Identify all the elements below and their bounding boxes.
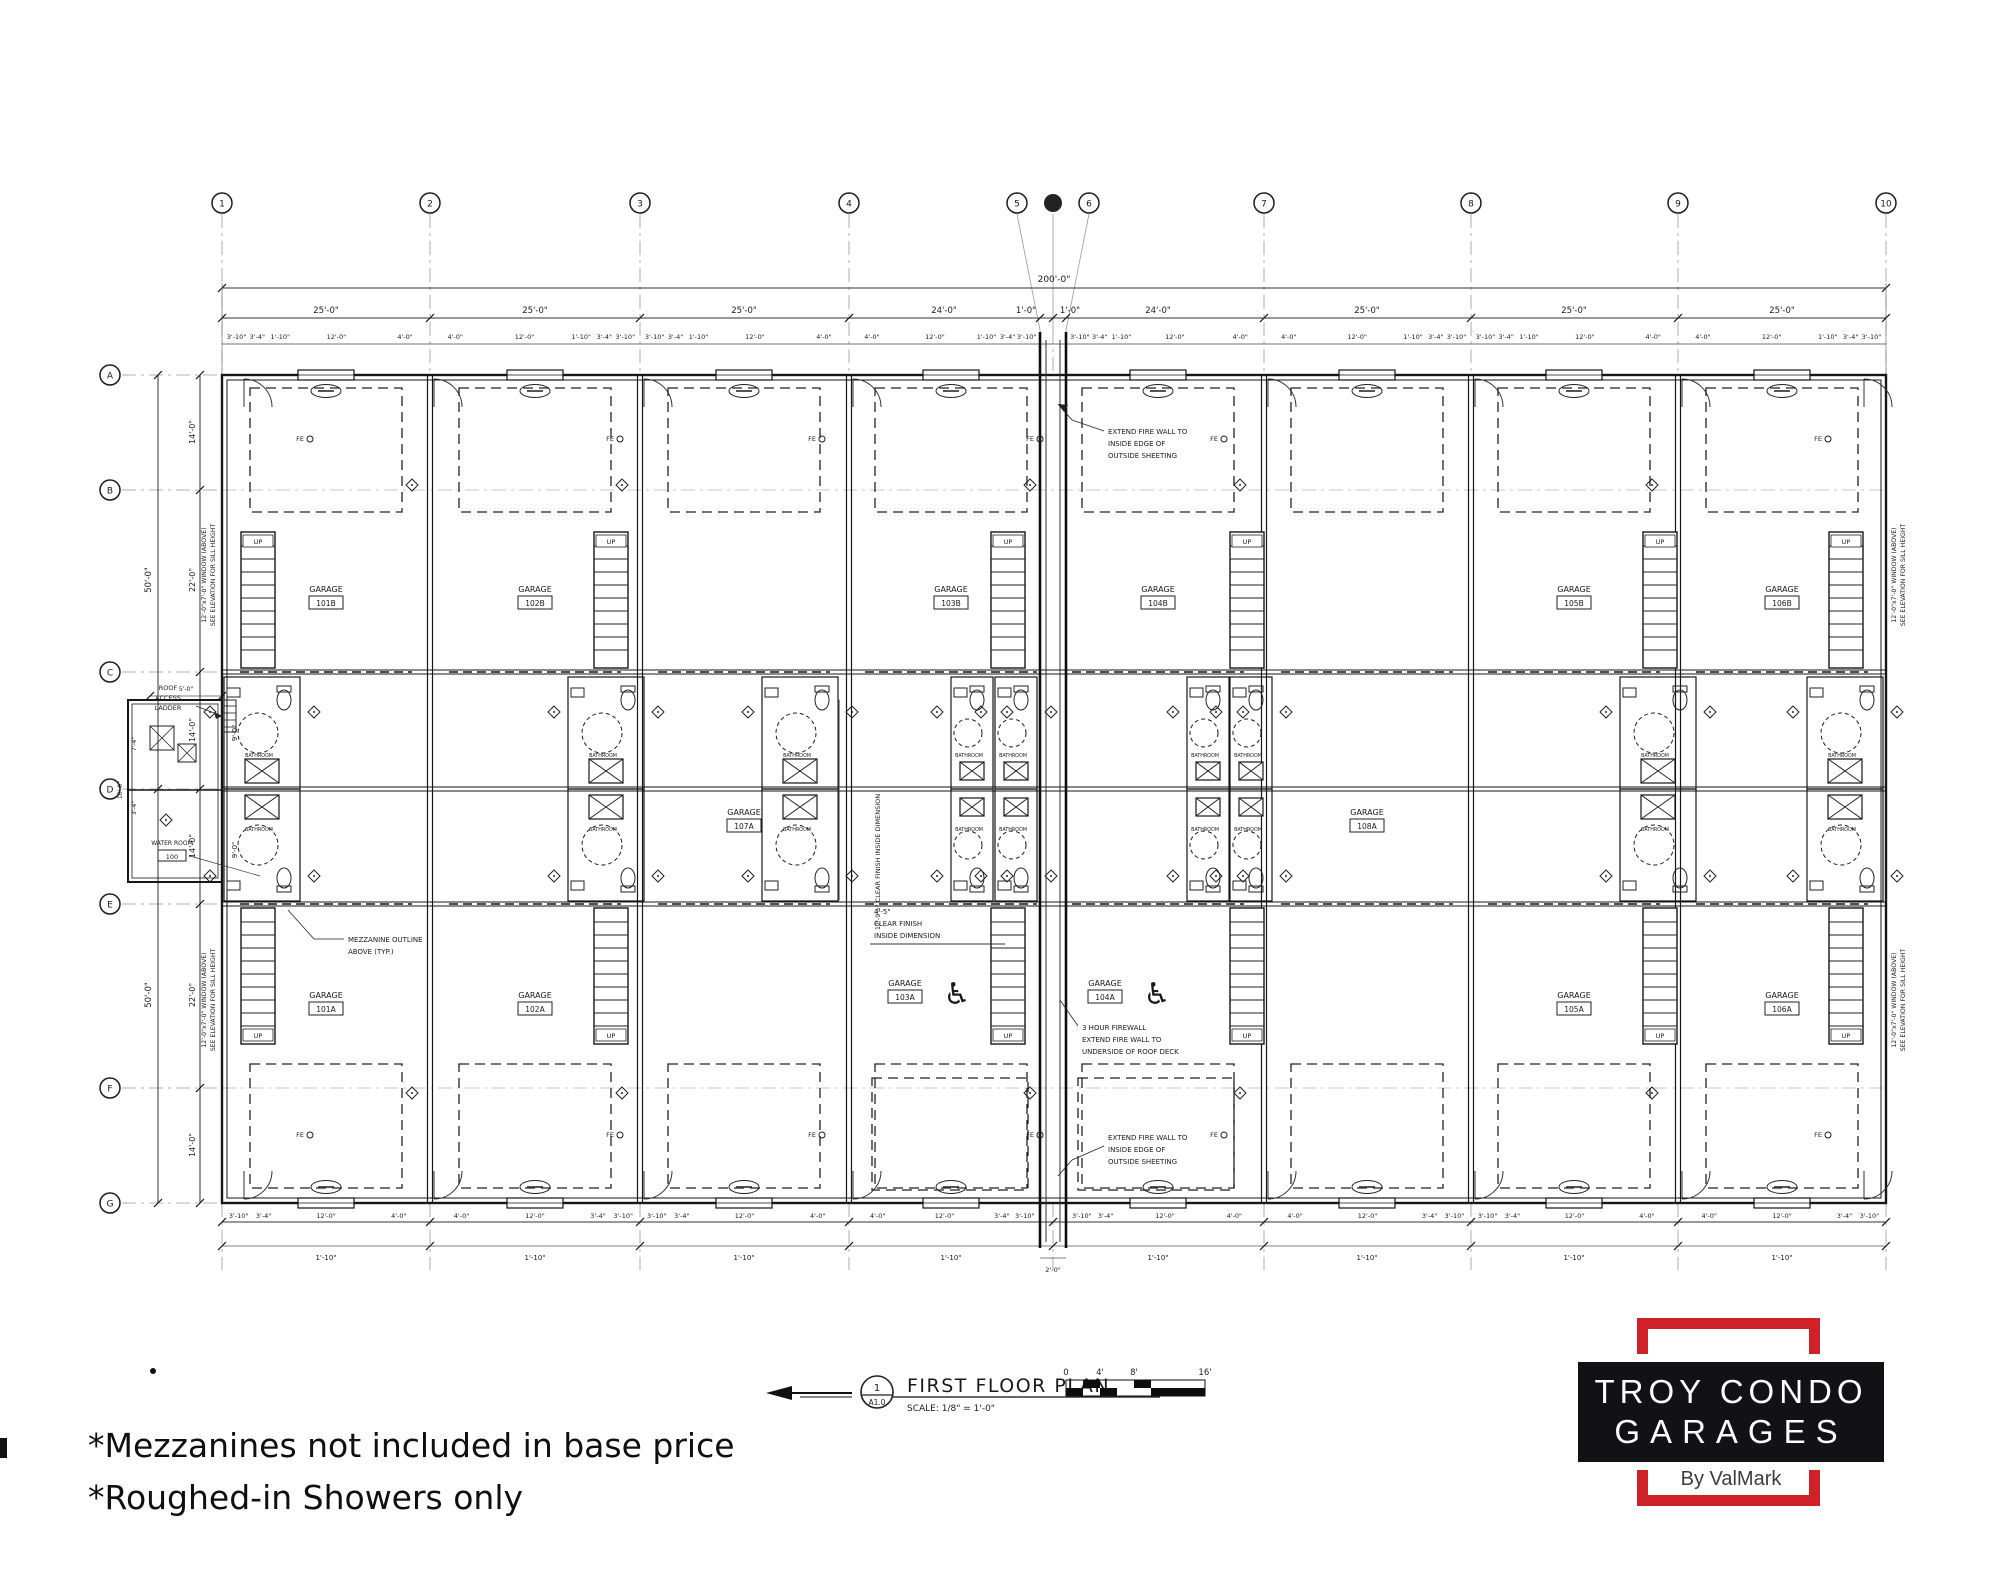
keynote-dot <box>1172 711 1174 713</box>
dim-left: 22'-0" <box>188 983 197 1007</box>
line <box>1072 1146 1104 1160</box>
dim-detail-top: 1'-10" <box>571 333 591 341</box>
garage-number: 103B <box>941 599 960 608</box>
logo-title-line1: TROY CONDO <box>1594 1373 1867 1411</box>
garage-label: GARAGE <box>1088 979 1122 988</box>
water-room-number: 100 <box>166 853 178 861</box>
dim-detail-top: 3'-10" <box>1476 333 1496 341</box>
keynote-dot <box>1605 875 1607 877</box>
stair-up-label: UP <box>1842 1032 1851 1040</box>
stair <box>1643 532 1677 668</box>
toilet-tank <box>1014 886 1028 892</box>
footnotes: *Mezzanines not included in base price *… <box>88 1420 735 1524</box>
keynote-dot <box>1006 875 1008 877</box>
keynote-dot <box>657 875 659 877</box>
dim-left: 14'-0" <box>188 718 197 742</box>
fire-extinguisher-label: FE <box>1210 435 1218 443</box>
sink-icon <box>227 881 240 890</box>
toilet-tank <box>1014 686 1028 692</box>
garage-label: GARAGE <box>518 585 552 594</box>
sink-icon <box>1190 881 1203 890</box>
annex-wall-inner <box>132 704 218 878</box>
toilet-icon <box>1014 868 1028 888</box>
garage-label: GARAGE <box>309 991 343 1000</box>
dim-bay: 1'-0" <box>1016 306 1036 316</box>
toilet-icon <box>277 868 291 888</box>
keynote-dot <box>411 484 413 486</box>
toilet-icon <box>1014 690 1028 710</box>
door-swing <box>244 379 272 407</box>
stair <box>991 532 1025 668</box>
mezzanine-outline <box>668 1064 820 1188</box>
fire-extinguisher-label: FE <box>808 435 816 443</box>
keynote-dot <box>1242 875 1244 877</box>
roof-ladder-note: LADDER <box>155 704 182 712</box>
dim-bottom-sub: 1'-10" <box>524 1254 545 1262</box>
grid-bubble-column-label: 8 <box>1468 200 1474 210</box>
stair-up-label: UP <box>607 538 616 546</box>
sink-icon <box>954 881 967 890</box>
dim-detail-top: 12'-0" <box>925 333 945 341</box>
fire-wall-edge-note: OUTSIDE SHEETING <box>1108 452 1177 460</box>
keynote-dot <box>1792 875 1794 877</box>
sink-icon <box>571 881 584 890</box>
dim-detail-top: 4'-0" <box>1281 333 1296 341</box>
bathroom-label: BATHROOM <box>589 753 617 759</box>
toilet-tank <box>1860 886 1874 892</box>
toilet-icon <box>277 690 291 710</box>
mezzanine-outline <box>459 388 611 512</box>
bathroom-label: BATHROOM <box>999 753 1027 759</box>
garage-label: GARAGE <box>1557 585 1591 594</box>
grid-bubble-column-label: 3 <box>637 200 643 210</box>
wheelchair-icon: ♿ <box>944 977 971 1012</box>
bathroom-label: BATHROOM <box>955 753 983 759</box>
shower-rough-in <box>1634 713 1674 753</box>
fire-extinguisher-label: FE <box>296 1131 304 1139</box>
fire-wall-edge-note: OUTSIDE SHEETING <box>1108 1158 1177 1166</box>
fire-extinguisher-label: FE <box>808 1131 816 1139</box>
rect <box>838 700 839 900</box>
door-swing <box>434 379 462 407</box>
shower-rough-in <box>998 719 1026 747</box>
toilet-tank <box>1860 686 1874 692</box>
keynote-dot <box>936 875 938 877</box>
keynote-dot <box>1239 1092 1241 1094</box>
scan-artifact <box>0 1438 7 1458</box>
mezzanine-outline <box>459 1064 611 1188</box>
shower-rough-in <box>998 831 1026 859</box>
shower-rough-in <box>1190 831 1218 859</box>
dim-left: 22'-0" <box>188 568 197 592</box>
keynote-dot <box>747 711 749 713</box>
dim-detail-bottom: 12'-0" <box>316 1212 336 1220</box>
dim-detail-top: 12'-0" <box>1762 333 1782 341</box>
keynote-dot <box>553 711 555 713</box>
line <box>1060 1000 1078 1026</box>
dim-detail-bottom: 4'-0" <box>1287 1212 1302 1220</box>
bathroom-label: BATHROOM <box>999 827 1027 833</box>
grid-bubble-column-label: 4 <box>846 200 852 210</box>
water-room-label: WATER ROOM <box>151 840 193 847</box>
scan-dot <box>150 1368 156 1374</box>
window-note: 12'-0"x7'-0" WINDOW (ABOVE) <box>1891 952 1898 1047</box>
dim-detail-bottom: 12'-0" <box>525 1212 545 1220</box>
mezzanine-note: MEZZANINE OUTLINE <box>348 936 423 944</box>
dim-bay: 25'-0" <box>731 306 757 316</box>
door-swing <box>853 379 881 407</box>
toilet-tank <box>815 686 829 692</box>
stair <box>241 532 275 668</box>
keynote-dot <box>621 1092 623 1094</box>
grid-bubble-column-label: 10 <box>1880 200 1892 210</box>
toilet-tank <box>970 886 984 892</box>
fire-extinguisher-icon <box>819 436 825 442</box>
dim-detail-bottom: 12'-0" <box>735 1212 755 1220</box>
keynote-dot <box>1896 711 1898 713</box>
line <box>1072 420 1104 431</box>
fire-extinguisher-label: FE <box>1026 1131 1034 1139</box>
stair <box>991 908 1025 1044</box>
keynote-dot <box>313 875 315 877</box>
line <box>288 910 314 939</box>
dim-detail-bottom: 3'-4" <box>1505 1212 1520 1220</box>
keynote-dot <box>1651 484 1653 486</box>
logo-byline: By ValMark <box>1578 1468 1884 1491</box>
fire-extinguisher-icon <box>617 436 623 442</box>
dim-detail-top: 3'-4" <box>250 333 265 341</box>
stair <box>241 908 275 1044</box>
bathroom-label: BATHROOM <box>245 827 273 833</box>
dim-detail-top: 4'-0" <box>447 333 462 341</box>
door-swing <box>1864 379 1892 407</box>
toilet-tank <box>1206 686 1220 692</box>
mezzanine-outline <box>1082 388 1234 512</box>
shower-rough-in <box>776 713 816 753</box>
mezzanine-outline <box>250 388 402 512</box>
sink-icon <box>765 881 778 890</box>
bathroom-label: BATHROOM <box>1641 827 1669 833</box>
stair <box>1230 532 1264 668</box>
clear-dim-horizontal: 4'-5" <box>874 908 891 916</box>
garage-label: GARAGE <box>888 979 922 988</box>
dim-detail-top: 1'-10" <box>1519 333 1539 341</box>
grid-bubble-row-label: A <box>107 372 114 382</box>
bathroom-label: BATHROOM <box>783 753 811 759</box>
title-block: 1 A1.0 FIRST FLOOR PLAN SCALE: 1/8" = 1'… <box>766 1368 1212 1414</box>
toilet-icon <box>621 868 635 888</box>
fire-extinguisher-icon <box>819 1132 825 1138</box>
bathroom-label: BATHROOM <box>955 827 983 833</box>
grid-bubble-row-label: B <box>107 487 113 497</box>
grid-bubble-row-label: F <box>107 1085 112 1095</box>
dim-detail-top: 12'-0" <box>745 333 765 341</box>
dim-detail-top: 12'-0" <box>515 333 535 341</box>
logo-title-line2: GARAGES <box>1614 1413 1847 1451</box>
dim-detail-top: 3'-4" <box>1092 333 1107 341</box>
dim-detail-top: 4'-0" <box>864 333 879 341</box>
keynote-dot <box>1029 484 1031 486</box>
scale-tick-1: 4' <box>1096 1368 1104 1378</box>
dim-bay: 25'-0" <box>1561 306 1587 316</box>
detail-number: 1 <box>874 1383 880 1394</box>
garage-number: 104B <box>1148 599 1167 608</box>
door-swing <box>1268 1171 1296 1199</box>
fire-extinguisher-icon <box>1221 1132 1227 1138</box>
dim-detail-top: 3'-4" <box>597 333 612 341</box>
dim-detail-bottom: 4'-0" <box>1701 1212 1716 1220</box>
fire-extinguisher-icon <box>307 1132 313 1138</box>
dim-overall-height: 50'-0" <box>144 567 154 593</box>
window-note: SEE ELEVATION FOR SILL HEIGHT <box>210 524 217 627</box>
dim-detail-bottom: 4'-0" <box>391 1212 406 1220</box>
garage-label: GARAGE <box>1350 808 1384 817</box>
dim-detail-top: 3'-10" <box>1447 333 1467 341</box>
dim-detail-top: 4'-0" <box>816 333 831 341</box>
three-hour-firewall-note: UNDERSIDE OF ROOF DECK <box>1082 1048 1179 1056</box>
roof-ladder-note: ACCESS <box>155 694 181 702</box>
stair-up-label: UP <box>254 1032 263 1040</box>
bathroom-label: BATHROOM <box>245 753 273 759</box>
fire-extinguisher-icon <box>1221 436 1227 442</box>
dim-detail-top: 3'-10" <box>1862 333 1882 341</box>
sink-icon <box>765 688 778 697</box>
keynote-dot <box>980 875 982 877</box>
keynote-dot <box>657 711 659 713</box>
dim-bay: 25'-0" <box>313 306 339 316</box>
window-note: 12'-0"x7'-0" WINDOW (ABOVE) <box>201 527 208 622</box>
dim-detail-bottom: 3'-4" <box>1422 1212 1437 1220</box>
stair <box>1643 908 1677 1044</box>
bathroom-label: BATHROOM <box>1641 753 1669 759</box>
dim-detail-top: 3'-10" <box>645 333 665 341</box>
mezzanine-outline <box>872 1078 1028 1190</box>
keynote-dot <box>209 875 211 877</box>
keynote-dot <box>747 875 749 877</box>
fire-extinguisher-icon <box>617 1132 623 1138</box>
fire-wall-edge-note: INSIDE EDGE OF <box>1108 440 1165 448</box>
dim-bay: 24'-0" <box>931 306 957 316</box>
garage-number: 105A <box>1564 1005 1584 1014</box>
fire-extinguisher-label: FE <box>606 435 614 443</box>
sink-icon <box>1190 688 1203 697</box>
fire-extinguisher-label: FE <box>606 1131 614 1139</box>
fire-extinguisher-icon <box>1825 436 1831 442</box>
dim-detail-top: 4'-0" <box>1645 333 1660 341</box>
dim-overall-width: 200'-0" <box>1038 275 1071 285</box>
shower-rough-in <box>1821 713 1861 753</box>
sink-icon <box>571 688 584 697</box>
toilet-tank <box>970 686 984 692</box>
dim-detail-top: 4'-0" <box>1695 333 1710 341</box>
dim-detail-top: 3'-10" <box>1017 333 1037 341</box>
bathroom-label: BATHROOM <box>783 827 811 833</box>
bathroom-label: BATHROOM <box>589 827 617 833</box>
sink-icon <box>1810 688 1823 697</box>
keynote-dot <box>1239 484 1241 486</box>
fire-extinguisher-icon <box>1825 1132 1831 1138</box>
dim-left: 14'-0" <box>188 1133 197 1157</box>
door-swing <box>434 1171 462 1199</box>
keynote-dot <box>851 711 853 713</box>
dim-detail-bottom: 12'-0" <box>1358 1212 1378 1220</box>
dim-bay: 24'-0" <box>1145 306 1171 316</box>
sheet-ref: A1.0 <box>868 1398 885 1407</box>
dim-detail-top: 3'-4" <box>1843 333 1858 341</box>
grid-bubble-column-label: 9 <box>1675 200 1681 210</box>
dim-detail-top: 12'-0" <box>327 333 347 341</box>
window-note: SEE ELEVATION FOR SILL HEIGHT <box>1900 524 1907 627</box>
stair-up-label: UP <box>607 1032 616 1040</box>
window-note: 12'-0"x7'-0" WINDOW (ABOVE) <box>201 952 208 1047</box>
grid-bubble-column-label: 7 <box>1261 200 1267 210</box>
stair-up-label: UP <box>254 538 263 546</box>
grid-bubble-center <box>1044 194 1062 212</box>
stair-up-label: UP <box>1004 538 1013 546</box>
door-swing <box>1864 1171 1892 1199</box>
sink-icon <box>998 881 1011 890</box>
door-swing <box>244 1171 272 1199</box>
garage-label: GARAGE <box>1557 991 1591 1000</box>
garage-label: GARAGE <box>1765 991 1799 1000</box>
toilet-icon <box>1860 868 1874 888</box>
dim-detail-top: 12'-0" <box>1575 333 1595 341</box>
fire-wall-edge-note: EXTEND FIRE WALL TO <box>1108 428 1188 436</box>
sink-icon <box>954 688 967 697</box>
sink-icon <box>1623 881 1636 890</box>
dim-detail-top: 3'-10" <box>1070 333 1090 341</box>
door-swing <box>853 1171 881 1199</box>
dim-detail-top: 1'-10" <box>1403 333 1423 341</box>
keynote-dot <box>621 484 623 486</box>
toilet-tank <box>815 886 829 892</box>
dim-detail-bottom: 3'-4" <box>1098 1212 1113 1220</box>
fire-extinguisher-label: FE <box>1814 435 1822 443</box>
bathroom-label: BATHROOM <box>1828 827 1856 833</box>
dim-detail-bottom: 3'-4" <box>994 1212 1009 1220</box>
keynote-dot <box>1285 711 1287 713</box>
dim-detail-bottom: 4'-0" <box>1639 1212 1654 1220</box>
dim-bottom-sub: 1'-10" <box>1356 1254 1377 1262</box>
dim-detail-top: 3'-4" <box>1498 333 1513 341</box>
mezzanine-outline <box>1706 388 1858 512</box>
garage-label: GARAGE <box>1141 585 1175 594</box>
dim-detail-bottom: 3'-10" <box>1478 1212 1498 1220</box>
dim-detail-bottom: 3'-4" <box>1837 1212 1852 1220</box>
keynote-dot <box>1896 875 1898 877</box>
dim-detail-top: 3'-10" <box>227 333 247 341</box>
mezzanine-outline <box>1498 1064 1650 1188</box>
sink-icon <box>1233 688 1246 697</box>
mezzanine-note: ABOVE (TYP.) <box>348 948 394 956</box>
grid-bubble-row-label: C <box>107 669 113 679</box>
shower-rough-in <box>1190 719 1218 747</box>
window-note: 12'-0"x7'-0" WINDOW (ABOVE) <box>1891 527 1898 622</box>
floor-plan-sheet: 1 A1.0 FIRST FLOOR PLAN SCALE: 1/8" = 1'… <box>0 0 2000 1571</box>
garage-number: 103A <box>895 993 915 1002</box>
door-swing <box>1475 379 1503 407</box>
keynote-dot <box>1285 875 1287 877</box>
keynote-dot <box>1242 711 1244 713</box>
grid-bubble-column-label: 2 <box>427 200 433 210</box>
garage-number: 102A <box>525 1005 545 1014</box>
dim-detail-bottom: 4'-0" <box>1227 1212 1242 1220</box>
dim-bottom-sub: 1'-10" <box>1147 1254 1168 1262</box>
mezzanine-outline <box>875 388 1027 512</box>
fire-wall-edge-note: INSIDE EDGE OF <box>1108 1146 1165 1154</box>
footnote-showers: *Roughed-in Showers only <box>88 1472 735 1524</box>
garage-number: 101A <box>316 1005 336 1014</box>
stair <box>594 908 628 1044</box>
dim-detail-bottom: 12'-0" <box>1772 1212 1792 1220</box>
keynote-dot <box>411 1092 413 1094</box>
dim-detail-bottom: 12'-0" <box>935 1212 955 1220</box>
garage-label: GARAGE <box>934 585 968 594</box>
stair-up-label: UP <box>1243 538 1252 546</box>
garage-number: 102B <box>525 599 544 608</box>
dim-annex: 3'-4" <box>131 801 138 815</box>
sink-icon <box>227 688 240 697</box>
dim-detail-bottom: 3'-4" <box>256 1212 271 1220</box>
garage-number: 104A <box>1095 993 1115 1002</box>
mezzanine-outline <box>1291 1064 1443 1188</box>
mezzanine-outline <box>1706 1064 1858 1188</box>
dim-detail-top: 1'-10" <box>270 333 290 341</box>
dim-detail-top: 4'-0" <box>397 333 412 341</box>
mezzanine-outline <box>875 1064 1027 1188</box>
sink-icon <box>998 688 1011 697</box>
keynote-dot <box>851 875 853 877</box>
grid-bubble-column-label: 6 <box>1086 200 1092 210</box>
grid-bubble-row-label: D <box>107 786 114 796</box>
garage-number: 106B <box>1772 599 1791 608</box>
garage-label: GARAGE <box>1765 585 1799 594</box>
bathroom-label: BATHROOM <box>1191 827 1219 833</box>
keynote-dot <box>1050 711 1052 713</box>
door-swing <box>1475 1171 1503 1199</box>
garage-number: 106A <box>1772 1005 1792 1014</box>
keynote-dot <box>553 875 555 877</box>
dim-bay: 25'-0" <box>1354 306 1380 316</box>
dim-detail-bottom: 12'-0" <box>1155 1212 1175 1220</box>
fire-extinguisher-label: FE <box>1026 435 1034 443</box>
dim-bottom-sub: 1'-10" <box>315 1254 336 1262</box>
toilet-tank <box>277 686 291 692</box>
fire-extinguisher-icon <box>307 436 313 442</box>
bathroom-label: BATHROOM <box>1234 753 1262 759</box>
grid-bubble-column-label: 1 <box>219 200 225 210</box>
toilet-icon <box>1206 690 1220 710</box>
stair-up-label: UP <box>1656 1032 1665 1040</box>
keynote-dot <box>313 711 315 713</box>
dim-annex: 10'-0" <box>117 781 124 799</box>
dim-annex: 5'-0" <box>179 686 193 693</box>
bathroom-label: BATHROOM <box>1828 753 1856 759</box>
toilet-icon <box>815 690 829 710</box>
window-note: SEE ELEVATION FOR SILL HEIGHT <box>210 949 217 1052</box>
keynote-dot <box>1709 875 1711 877</box>
stair <box>594 532 628 668</box>
mezzanine-outline <box>1291 388 1443 512</box>
keynote-dot <box>1215 711 1217 713</box>
fire-extinguisher-label: FE <box>1210 1131 1218 1139</box>
three-hour-firewall-note: EXTEND FIRE WALL TO <box>1082 1036 1162 1044</box>
shower-rough-in <box>954 831 982 859</box>
sink-icon <box>1623 688 1636 697</box>
toilet-icon <box>1860 690 1874 710</box>
keynote-dot <box>1172 875 1174 877</box>
dim-bay: 25'-0" <box>1769 306 1795 316</box>
